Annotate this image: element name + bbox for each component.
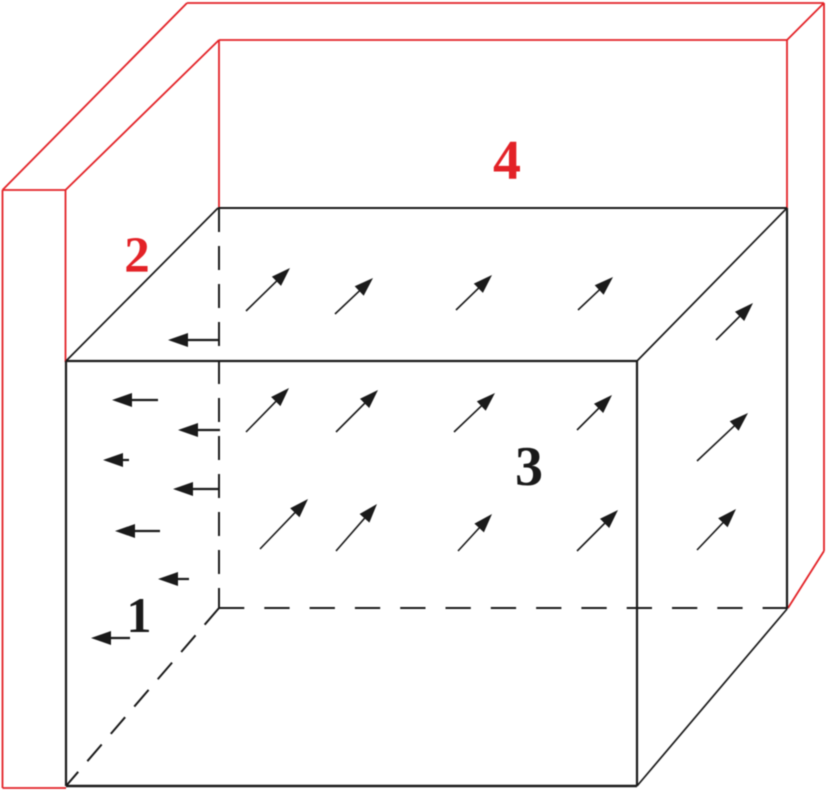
svg-text:2: 2 [124, 228, 150, 284]
svg-text:3: 3 [515, 436, 543, 498]
svg-text:1: 1 [127, 587, 152, 643]
svg-text:4: 4 [493, 130, 521, 192]
